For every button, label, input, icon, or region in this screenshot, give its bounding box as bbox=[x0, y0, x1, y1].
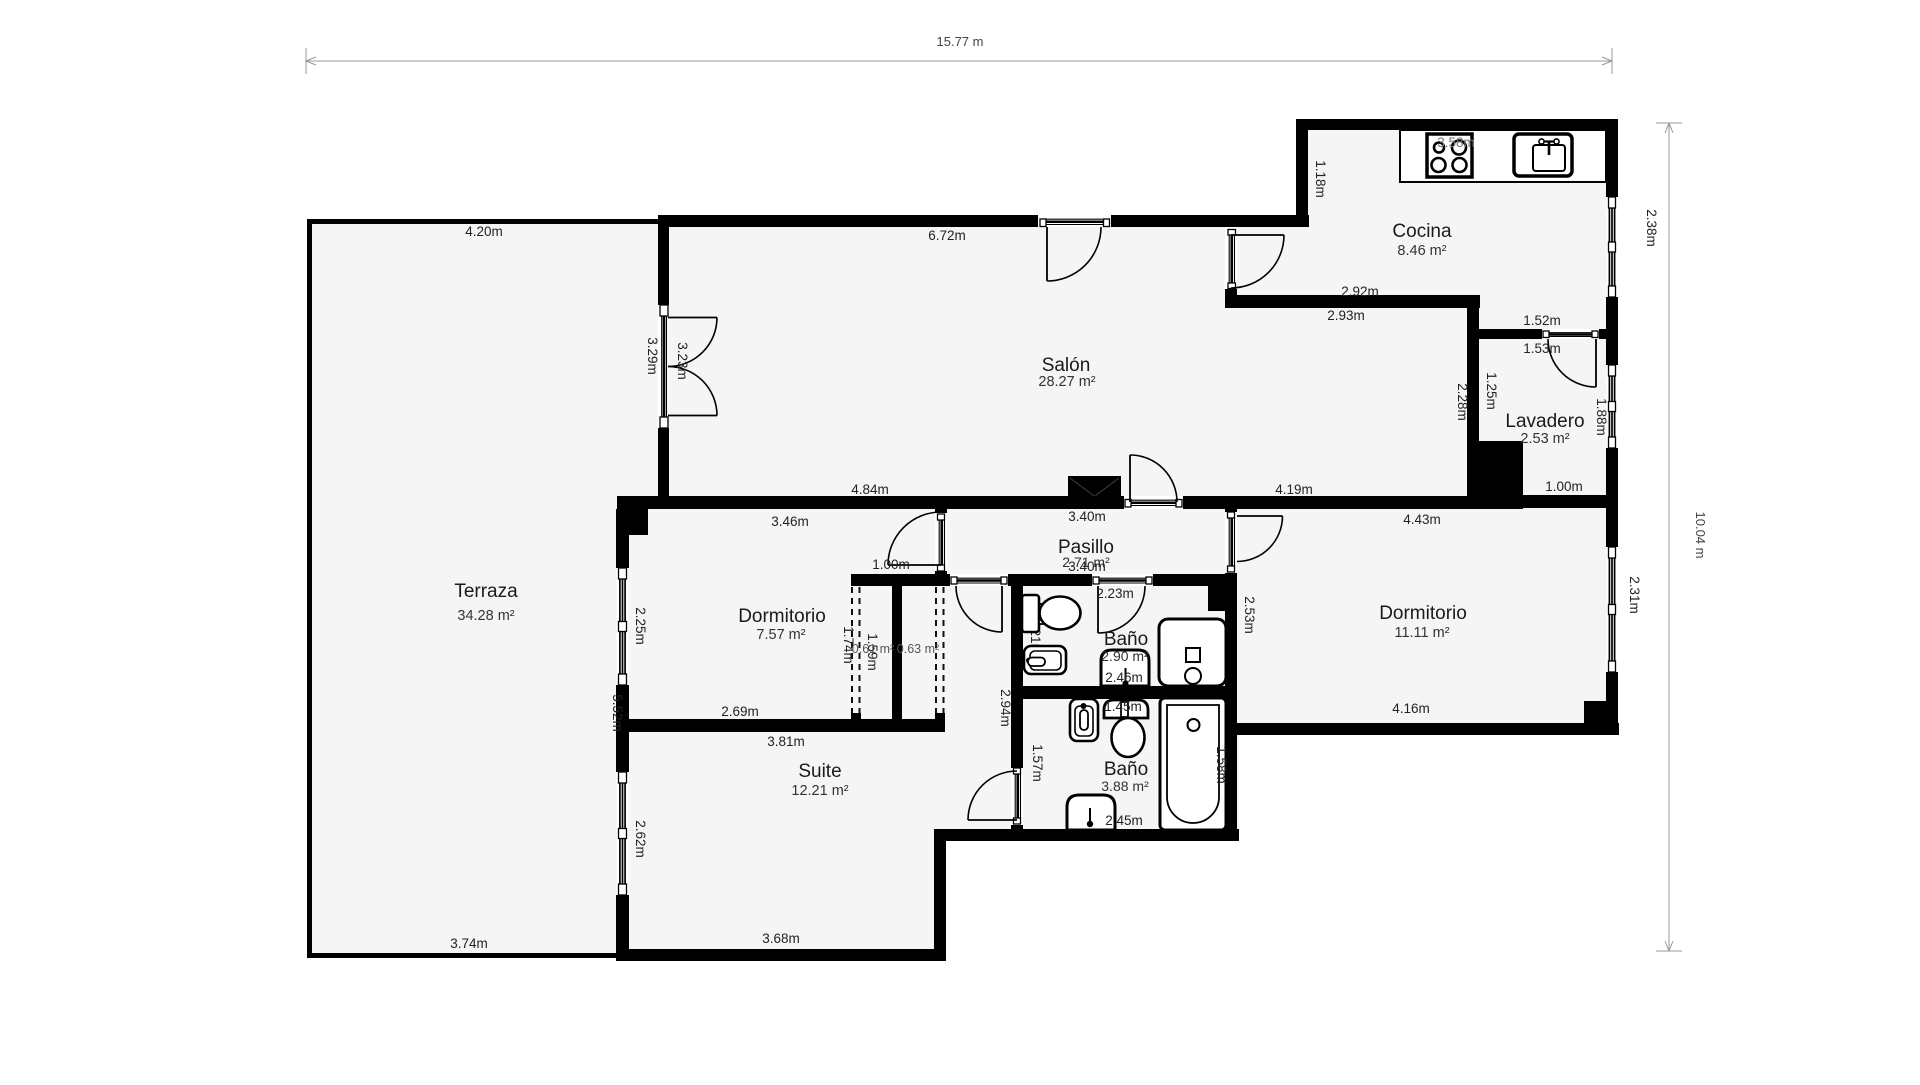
svg-text:11.11 m²: 11.11 m² bbox=[1394, 625, 1449, 641]
svg-text:3.88 m²: 3.88 m² bbox=[1101, 778, 1149, 794]
svg-text:2.53m: 2.53m bbox=[1242, 596, 1257, 634]
svg-text:1.53m: 1.53m bbox=[1523, 341, 1561, 356]
svg-text:2.94m: 2.94m bbox=[998, 689, 1013, 727]
svg-text:2.23m: 2.23m bbox=[1096, 586, 1134, 601]
svg-text:1.18m: 1.18m bbox=[1313, 160, 1328, 198]
svg-text:2.53 m²: 2.53 m² bbox=[1520, 431, 1569, 447]
svg-text:Salón: Salón bbox=[1042, 355, 1091, 376]
svg-text:3.74m: 3.74m bbox=[450, 936, 488, 951]
svg-text:4.43m: 4.43m bbox=[1403, 512, 1441, 527]
svg-text:8.46 m²: 8.46 m² bbox=[1397, 243, 1446, 259]
svg-text:12.21 m²: 12.21 m² bbox=[791, 783, 848, 799]
svg-text:Baño: Baño bbox=[1104, 629, 1148, 650]
svg-text:3.29m: 3.29m bbox=[645, 337, 660, 375]
svg-text:3.58m: 3.58m bbox=[1437, 135, 1475, 150]
svg-text:Terraza: Terraza bbox=[454, 581, 518, 602]
svg-text:1.00m: 1.00m bbox=[872, 557, 910, 572]
svg-text:1.58m: 1.58m bbox=[1214, 746, 1229, 784]
svg-text:15.77 m: 15.77 m bbox=[937, 34, 984, 49]
svg-text:1.00m: 1.00m bbox=[1545, 479, 1583, 494]
svg-text:2.38m: 2.38m bbox=[1644, 209, 1659, 247]
svg-text:1.25m: 1.25m bbox=[1484, 372, 1499, 410]
svg-text:4.19m: 4.19m bbox=[1275, 482, 1313, 497]
svg-text:2.28m: 2.28m bbox=[1455, 383, 1470, 421]
svg-text:2.93m: 2.93m bbox=[1327, 308, 1365, 323]
svg-text:7.57 m²: 7.57 m² bbox=[756, 627, 805, 643]
svg-text:0.63 m²: 0.63 m² bbox=[897, 642, 939, 656]
svg-text:1.45m: 1.45m bbox=[1104, 699, 1142, 714]
svg-text:2.90 m²: 2.90 m² bbox=[1101, 648, 1149, 664]
svg-text:Cocina: Cocina bbox=[1392, 221, 1452, 242]
svg-text:3.46m: 3.46m bbox=[771, 514, 809, 529]
svg-text:3.81m: 3.81m bbox=[767, 734, 805, 749]
svg-text:2.46m: 2.46m bbox=[1105, 670, 1143, 685]
svg-text:6.72m: 6.72m bbox=[928, 228, 966, 243]
svg-text:4.20m: 4.20m bbox=[465, 224, 503, 239]
svg-text:3.40m: 3.40m bbox=[1068, 559, 1106, 574]
svg-text:Suite: Suite bbox=[798, 761, 841, 782]
svg-text:10.04 m: 10.04 m bbox=[1693, 512, 1708, 559]
svg-text:2.69m: 2.69m bbox=[721, 704, 759, 719]
svg-text:5.52m: 5.52m bbox=[610, 694, 625, 732]
svg-text:2.31m: 2.31m bbox=[1627, 576, 1642, 614]
svg-text:3.68m: 3.68m bbox=[762, 931, 800, 946]
svg-text:3.40m: 3.40m bbox=[1068, 509, 1106, 524]
svg-text:28.27 m²: 28.27 m² bbox=[1038, 374, 1095, 390]
svg-text:4.16m: 4.16m bbox=[1392, 701, 1430, 716]
svg-text:2.62m: 2.62m bbox=[633, 820, 648, 858]
svg-text:Baño: Baño bbox=[1104, 759, 1148, 780]
svg-text:1.52m: 1.52m bbox=[1523, 313, 1561, 328]
svg-text:Dormitorio: Dormitorio bbox=[1379, 603, 1467, 624]
svg-text:2.25m: 2.25m bbox=[633, 607, 648, 645]
svg-text:4.84m: 4.84m bbox=[851, 482, 889, 497]
svg-text:Lavadero: Lavadero bbox=[1505, 411, 1584, 432]
svg-text:2.92m: 2.92m bbox=[1341, 284, 1379, 299]
svg-text:2.45m: 2.45m bbox=[1105, 813, 1143, 828]
svg-text:0.61 m²: 0.61 m² bbox=[852, 642, 894, 656]
svg-text:Dormitorio: Dormitorio bbox=[738, 606, 826, 627]
svg-text:34.28 m²: 34.28 m² bbox=[457, 608, 514, 624]
svg-text:3.23m: 3.23m bbox=[675, 342, 690, 380]
svg-text:1.88m: 1.88m bbox=[1594, 398, 1609, 436]
svg-text:1.57m: 1.57m bbox=[1030, 744, 1045, 782]
